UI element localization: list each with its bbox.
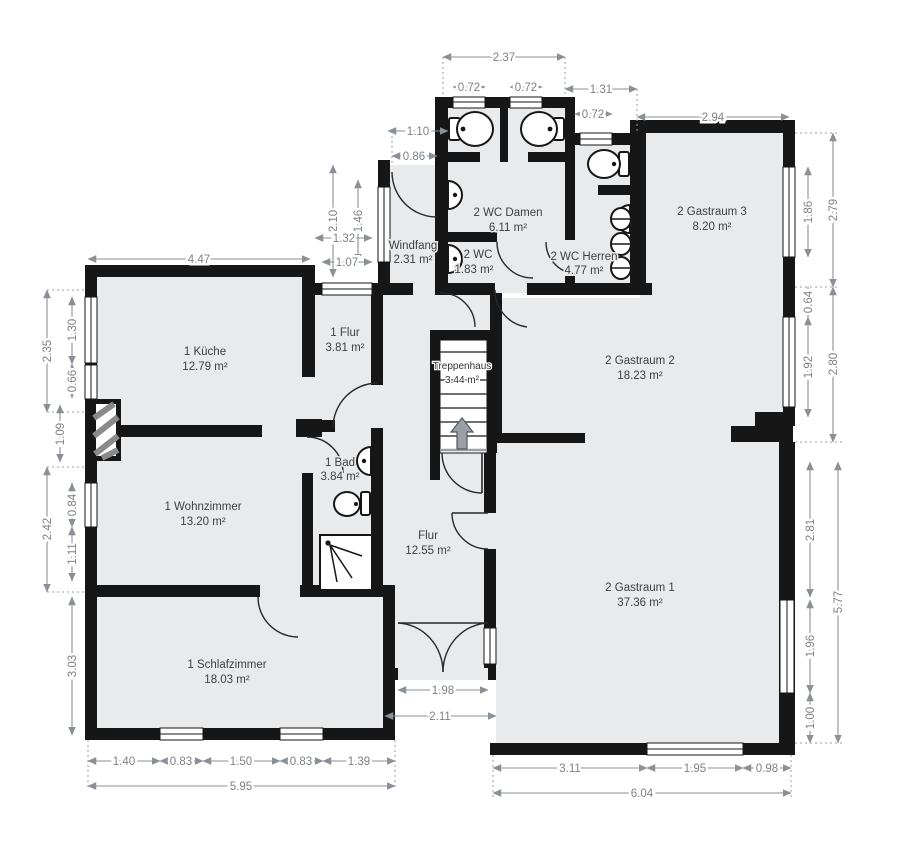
- floor-plan-svg: 2.37 0.72 0.72 1.31 0.72 2.94 1.10 0.86 …: [0, 0, 910, 843]
- dim-label: 1.00: [805, 707, 817, 729]
- room-label-treppenhaus: Treppenhaus: [433, 361, 492, 372]
- window: [783, 167, 795, 257]
- room-label-windfang: Windfang: [389, 240, 438, 252]
- window: [322, 283, 372, 295]
- dim-label: 1.96: [805, 635, 817, 657]
- room-label-schlafzimmer: 1 Schlafzimmer: [187, 659, 266, 671]
- window: [85, 365, 97, 399]
- toilet-icon: [521, 112, 564, 146]
- window: [510, 97, 542, 108]
- room-area-kueche: 12.79 m²: [182, 361, 228, 373]
- dim-label: 0.72: [582, 109, 604, 121]
- dim-label: 5.77: [833, 591, 845, 613]
- room-area-bad: 3.84 m²: [321, 471, 360, 483]
- dim-label: 1.95: [684, 763, 706, 775]
- dim-label: 1.40: [113, 756, 135, 768]
- dim-label: 4.47: [188, 254, 210, 266]
- room-label-wc-damen: 2 WC Damen: [473, 207, 542, 219]
- dim-label: 0.66: [67, 370, 79, 392]
- dim-label: 1.98: [432, 685, 454, 697]
- room-area-wc-herren: 4.77 m²: [565, 265, 604, 277]
- window: [580, 133, 612, 145]
- room-label-gastraum2: 2 Gastraum 2: [605, 355, 675, 367]
- room-area-flur2: 12.55 m²: [405, 545, 451, 557]
- dim-label: 0.84: [67, 493, 79, 516]
- dim-label: 0.72: [515, 82, 537, 94]
- room-label-flur2: Flur: [418, 530, 438, 542]
- dim-label: 2.35: [42, 340, 54, 362]
- toilet-icon: [449, 112, 493, 146]
- room-area-schlafzimmer: 18.03 m²: [204, 674, 250, 686]
- room-label-wc-herren: 2 WC Herren: [550, 251, 617, 263]
- room-area-gastraum1: 37.36 m²: [617, 597, 663, 609]
- window: [280, 728, 323, 740]
- room-area-gastraum2: 18.23 m²: [617, 370, 663, 382]
- dim-label: 3.11: [559, 763, 581, 775]
- floor-plan-canvas: 2.37 0.72 0.72 1.31 0.72 2.94 1.10 0.86 …: [0, 0, 910, 843]
- dim-label: 0.98: [756, 763, 778, 775]
- dim-label: 1.39: [348, 756, 370, 768]
- room-label-kueche: 1 Küche: [184, 346, 226, 358]
- dim-label: 1.31: [590, 84, 612, 96]
- window: [85, 297, 97, 363]
- dim-label: 2.42: [42, 518, 54, 540]
- dim-label: 1.30: [67, 319, 79, 341]
- window: [647, 743, 743, 755]
- chimney: [91, 399, 121, 461]
- room-label-gastraum1: 2 Gastraum 1: [605, 582, 675, 594]
- room-label-wc: 2 WC: [464, 249, 493, 261]
- shower-icon: [320, 535, 372, 590]
- dim-label: 2.37: [493, 52, 515, 64]
- room-label-flur1: 1 Flur: [330, 327, 360, 339]
- window: [783, 317, 795, 407]
- window: [780, 600, 794, 693]
- dim-label: 1.07: [336, 257, 358, 269]
- room-label-wohnzimmer: 1 Wohnzimmer: [164, 501, 241, 513]
- dim-label: 2.10: [328, 210, 340, 232]
- dim-label: 0.83: [290, 756, 312, 768]
- urinal-icon: [611, 208, 631, 230]
- dim-label: 6.04: [631, 788, 654, 800]
- dim-label: 0.83: [170, 756, 192, 768]
- window: [85, 483, 97, 527]
- dim-label: 2.81: [805, 519, 817, 541]
- window: [484, 628, 496, 664]
- toilet-icon: [588, 150, 629, 178]
- window: [453, 97, 485, 108]
- window: [160, 728, 203, 740]
- toilet-icon: [334, 492, 370, 516]
- dim-label: 1.50: [230, 756, 252, 768]
- room-area-gastraum3: 8.20 m²: [693, 221, 732, 233]
- dim-label: 1.46: [353, 210, 365, 232]
- dim-label: 2.94: [702, 112, 725, 124]
- dim-label: 1.32: [333, 233, 355, 245]
- dim-label: 0.64: [803, 290, 815, 313]
- dim-label: 1.10: [407, 126, 429, 138]
- dim-label: 1.09: [55, 423, 67, 445]
- staircase: [440, 340, 487, 453]
- room-label-bad: 1 Bad: [325, 457, 355, 469]
- dim-label: 1.11: [67, 543, 79, 565]
- dim-label: 5.95: [230, 781, 252, 793]
- dim-label: 2.11: [429, 711, 451, 723]
- room-area-wohnzimmer: 13.20 m²: [180, 516, 226, 528]
- room-label-gastraum3: 2 Gastraum 3: [677, 206, 747, 218]
- dim-label: 2.79: [828, 199, 840, 221]
- dim-label: 0.86: [403, 151, 425, 163]
- room-area-flur1: 3.81 m²: [326, 342, 365, 354]
- dim-label: 0.72: [458, 82, 480, 94]
- dim-label: 2.80: [828, 353, 840, 375]
- room-area-windfang: 2.31 m²: [394, 254, 433, 266]
- room-area-treppenhaus: 3.44 m²: [445, 375, 480, 386]
- dim-label: 3.03: [67, 655, 79, 677]
- dim-label: 1.92: [803, 356, 815, 378]
- dim-label: 1.86: [803, 201, 815, 223]
- room-area-wc: 1.83 m²: [455, 264, 494, 276]
- room-area-wc-damen: 6.11 m²: [489, 222, 527, 234]
